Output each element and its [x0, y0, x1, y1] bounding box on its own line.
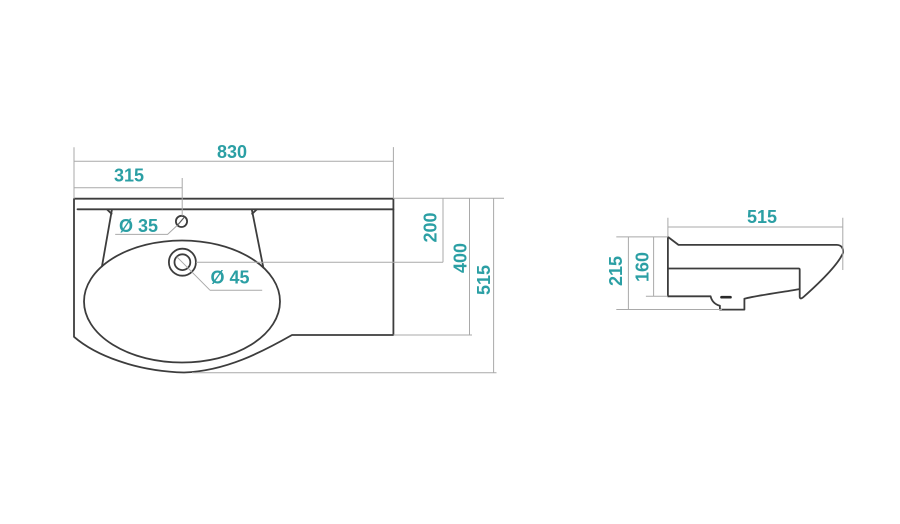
- svg-text:515: 515: [474, 265, 494, 295]
- svg-text:515: 515: [747, 207, 777, 227]
- svg-text:160: 160: [633, 252, 653, 282]
- svg-text:315: 315: [114, 166, 144, 186]
- svg-text:215: 215: [606, 256, 626, 286]
- svg-text:200: 200: [421, 212, 441, 242]
- svg-text:830: 830: [217, 142, 247, 162]
- svg-text:Ø 45: Ø 45: [210, 268, 249, 288]
- svg-text:400: 400: [451, 243, 471, 273]
- svg-text:Ø 35: Ø 35: [119, 216, 158, 236]
